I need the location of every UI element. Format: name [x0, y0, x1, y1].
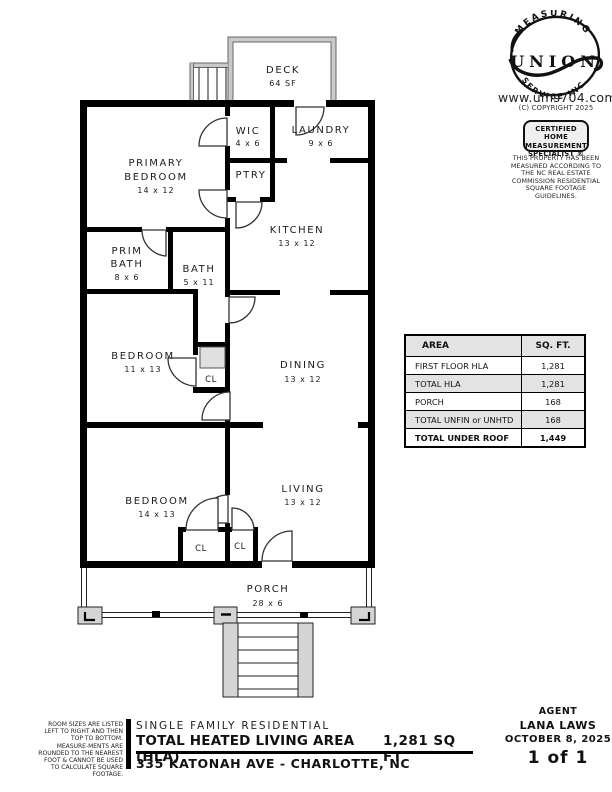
room-label-kitchen: KITCHEN	[270, 225, 325, 236]
room-label-closet3: CL	[234, 542, 246, 552]
room-label-closet1: CL	[205, 375, 217, 385]
nc-guidelines-note: THIS PROPERTY HAS BEEN MEASURED ACCORDIN…	[505, 155, 607, 201]
property-type: SINGLE FAMILY RESIDENTIAL	[136, 720, 330, 732]
row-label: TOTAL UNFIN or UNHTD	[406, 411, 521, 428]
table-row-first-floor-hla: FIRST FLOOR HLA 1,281	[406, 356, 584, 374]
table-row-total-hla: TOTAL HLA 1,281	[406, 374, 584, 392]
area-table-header-sqft: SQ. FT.	[521, 336, 584, 356]
room-dims-porch: 28 x 6	[252, 599, 283, 608]
row-value: 1,449	[521, 429, 584, 446]
area-table-header-row: AREA SQ. FT.	[406, 336, 584, 356]
room-dims-living: 13 x 12	[284, 498, 321, 507]
badge-line2: MEASUREMENT	[525, 142, 587, 150]
room-label-closet2: CL	[195, 544, 207, 554]
report-date: OCTOBER 8, 2025	[502, 734, 612, 745]
room-label-wic: WIC	[236, 126, 261, 137]
logo-union-text: UNION	[510, 52, 600, 71]
floor-plan-report-page: { "branding": { "logo_arc_top": "MEASURI…	[0, 0, 612, 792]
table-row-total-under-roof: TOTAL UNDER ROOF 1,449	[406, 428, 584, 446]
room-dims-bedroom3: 14 x 13	[138, 510, 175, 519]
room-label-primary-bedroom-2: BEDROOM	[124, 172, 187, 183]
title-underline	[136, 751, 473, 754]
row-label: TOTAL HLA	[406, 375, 521, 392]
row-label: FIRST FLOOR HLA	[406, 357, 521, 374]
agent-label: AGENT	[502, 706, 612, 717]
room-label-prim-bath-2: BATH	[111, 259, 144, 270]
room-dims-dining: 13 x 12	[284, 375, 321, 384]
room-dims-prim-bath: 8 x 6	[115, 273, 140, 282]
certified-badge: CERTIFIED HOME MEASUREMENT SPECIALIST ®	[523, 120, 589, 152]
room-label-living: LIVING	[281, 484, 324, 495]
logo-arc-top-text: MEASURING	[514, 10, 593, 37]
area-table: AREA SQ. FT. FIRST FLOOR HLA 1,281 TOTAL…	[404, 334, 586, 448]
room-label-porch: PORCH	[247, 584, 290, 595]
row-label: PORCH	[406, 393, 521, 410]
union-measuring-service-logo-icon: MEASURING UNION SERVICE INC.	[496, 10, 612, 102]
title-block-divider	[126, 719, 131, 769]
room-label-bedroom3: BEDROOM	[125, 496, 188, 507]
room-dims-bedroom2: 11 x 13	[124, 365, 161, 374]
room-label-bedroom2: BEDROOM	[111, 351, 174, 362]
table-row-porch: PORCH 168	[406, 392, 584, 410]
website-url: www.ums704.com	[498, 90, 612, 105]
row-value: 168	[521, 393, 584, 410]
row-label: TOTAL UNDER ROOF	[406, 429, 521, 446]
badge-line1: CERTIFIED HOME	[525, 125, 587, 142]
room-area-deck: 64 SF	[269, 79, 296, 88]
front-steps	[223, 623, 313, 697]
deck-stairs	[190, 63, 228, 100]
property-address: 335 KATONAH AVE - CHARLOTTE, NC	[136, 756, 410, 771]
area-table-header-area: AREA	[406, 336, 521, 356]
room-label-deck: DECK	[266, 65, 300, 76]
agent-block: AGENT LANA LAWS OCTOBER 8, 2025 1 of 1	[502, 706, 612, 768]
room-label-laundry: LAUNDRY	[292, 125, 351, 136]
svg-text:MEASURING: MEASURING	[514, 10, 593, 37]
copyright-text: (C) COPYRIGHT 2025	[498, 104, 612, 112]
row-value: 1,281	[521, 357, 584, 374]
row-value: 1,281	[521, 375, 584, 392]
room-dims-wic: 4 x 6	[236, 139, 261, 148]
room-label-bath: BATH	[183, 264, 216, 275]
room-label-primary-bedroom-1: PRIMARY	[128, 158, 183, 169]
measurement-note: ROOM SIZES ARE LISTED LEFT TO RIGHT AND …	[38, 721, 123, 779]
table-row-total-unfin: TOTAL UNFIN or UNHTD 168	[406, 410, 584, 428]
room-label-dining: DINING	[280, 360, 326, 371]
porch-posts	[78, 607, 375, 624]
room-labels: DECK 64 SF WIC 4 x 6 LAUNDRY 9 x 6 PRIMA…	[111, 65, 351, 608]
room-dims-bath: 5 x 11	[183, 278, 214, 287]
row-value: 168	[521, 411, 584, 428]
closet-shelf	[200, 347, 225, 368]
room-dims-primary-bedroom: 14 x 12	[137, 186, 174, 195]
agent-name: LANA LAWS	[502, 719, 612, 732]
page-number: 1 of 1	[502, 748, 612, 768]
room-dims-laundry: 9 x 6	[309, 139, 334, 148]
room-dims-kitchen: 13 x 12	[278, 239, 315, 248]
room-label-pantry: PTRY	[236, 170, 267, 181]
room-label-prim-bath-1: PRIM	[112, 246, 143, 257]
